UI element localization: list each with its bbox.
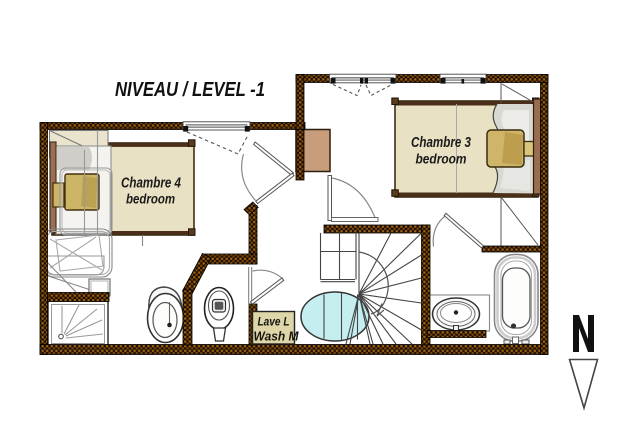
svg-text:Lave L: Lave L (258, 315, 290, 329)
svg-text:bedroom: bedroom (126, 191, 175, 207)
svg-text:NIVEAU / LEVEL -1: NIVEAU / LEVEL -1 (115, 79, 265, 101)
svg-text:Chambre 3: Chambre 3 (411, 135, 471, 151)
svg-text:bedroom: bedroom (416, 151, 467, 167)
svg-text:Wash M: Wash M (254, 330, 300, 344)
svg-text:Chambre 4: Chambre 4 (121, 176, 181, 192)
